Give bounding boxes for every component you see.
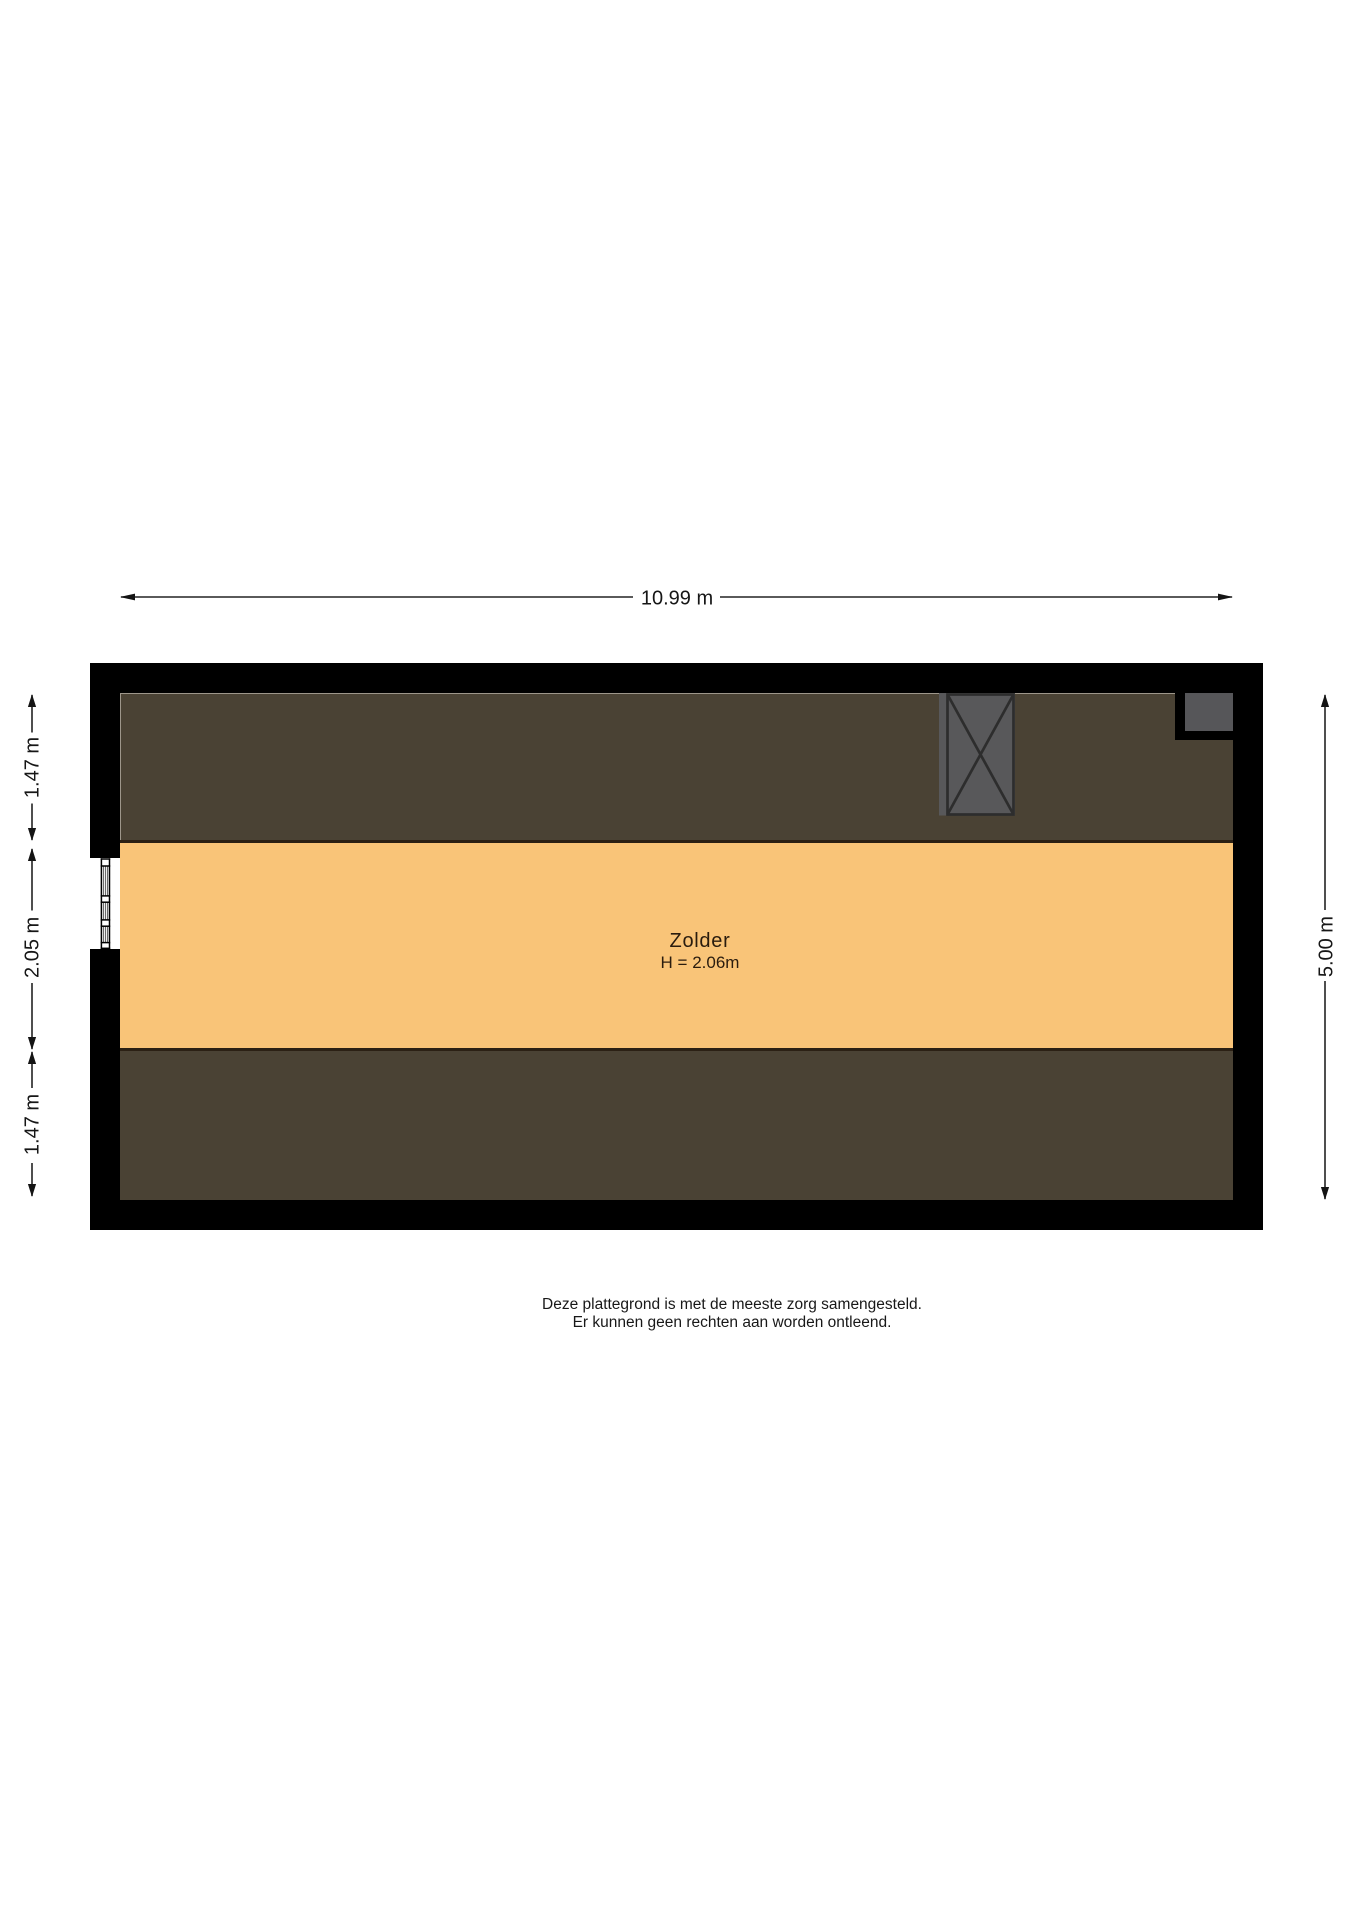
svg-text:1.47 m: 1.47 m — [22, 1094, 44, 1155]
svg-text:5.00 m: 5.00 m — [1316, 916, 1338, 977]
svg-text:2.05 m: 2.05 m — [22, 917, 44, 978]
svg-text:1.47 m: 1.47 m — [22, 737, 44, 798]
svg-text:10.99 m: 10.99 m — [641, 588, 713, 610]
